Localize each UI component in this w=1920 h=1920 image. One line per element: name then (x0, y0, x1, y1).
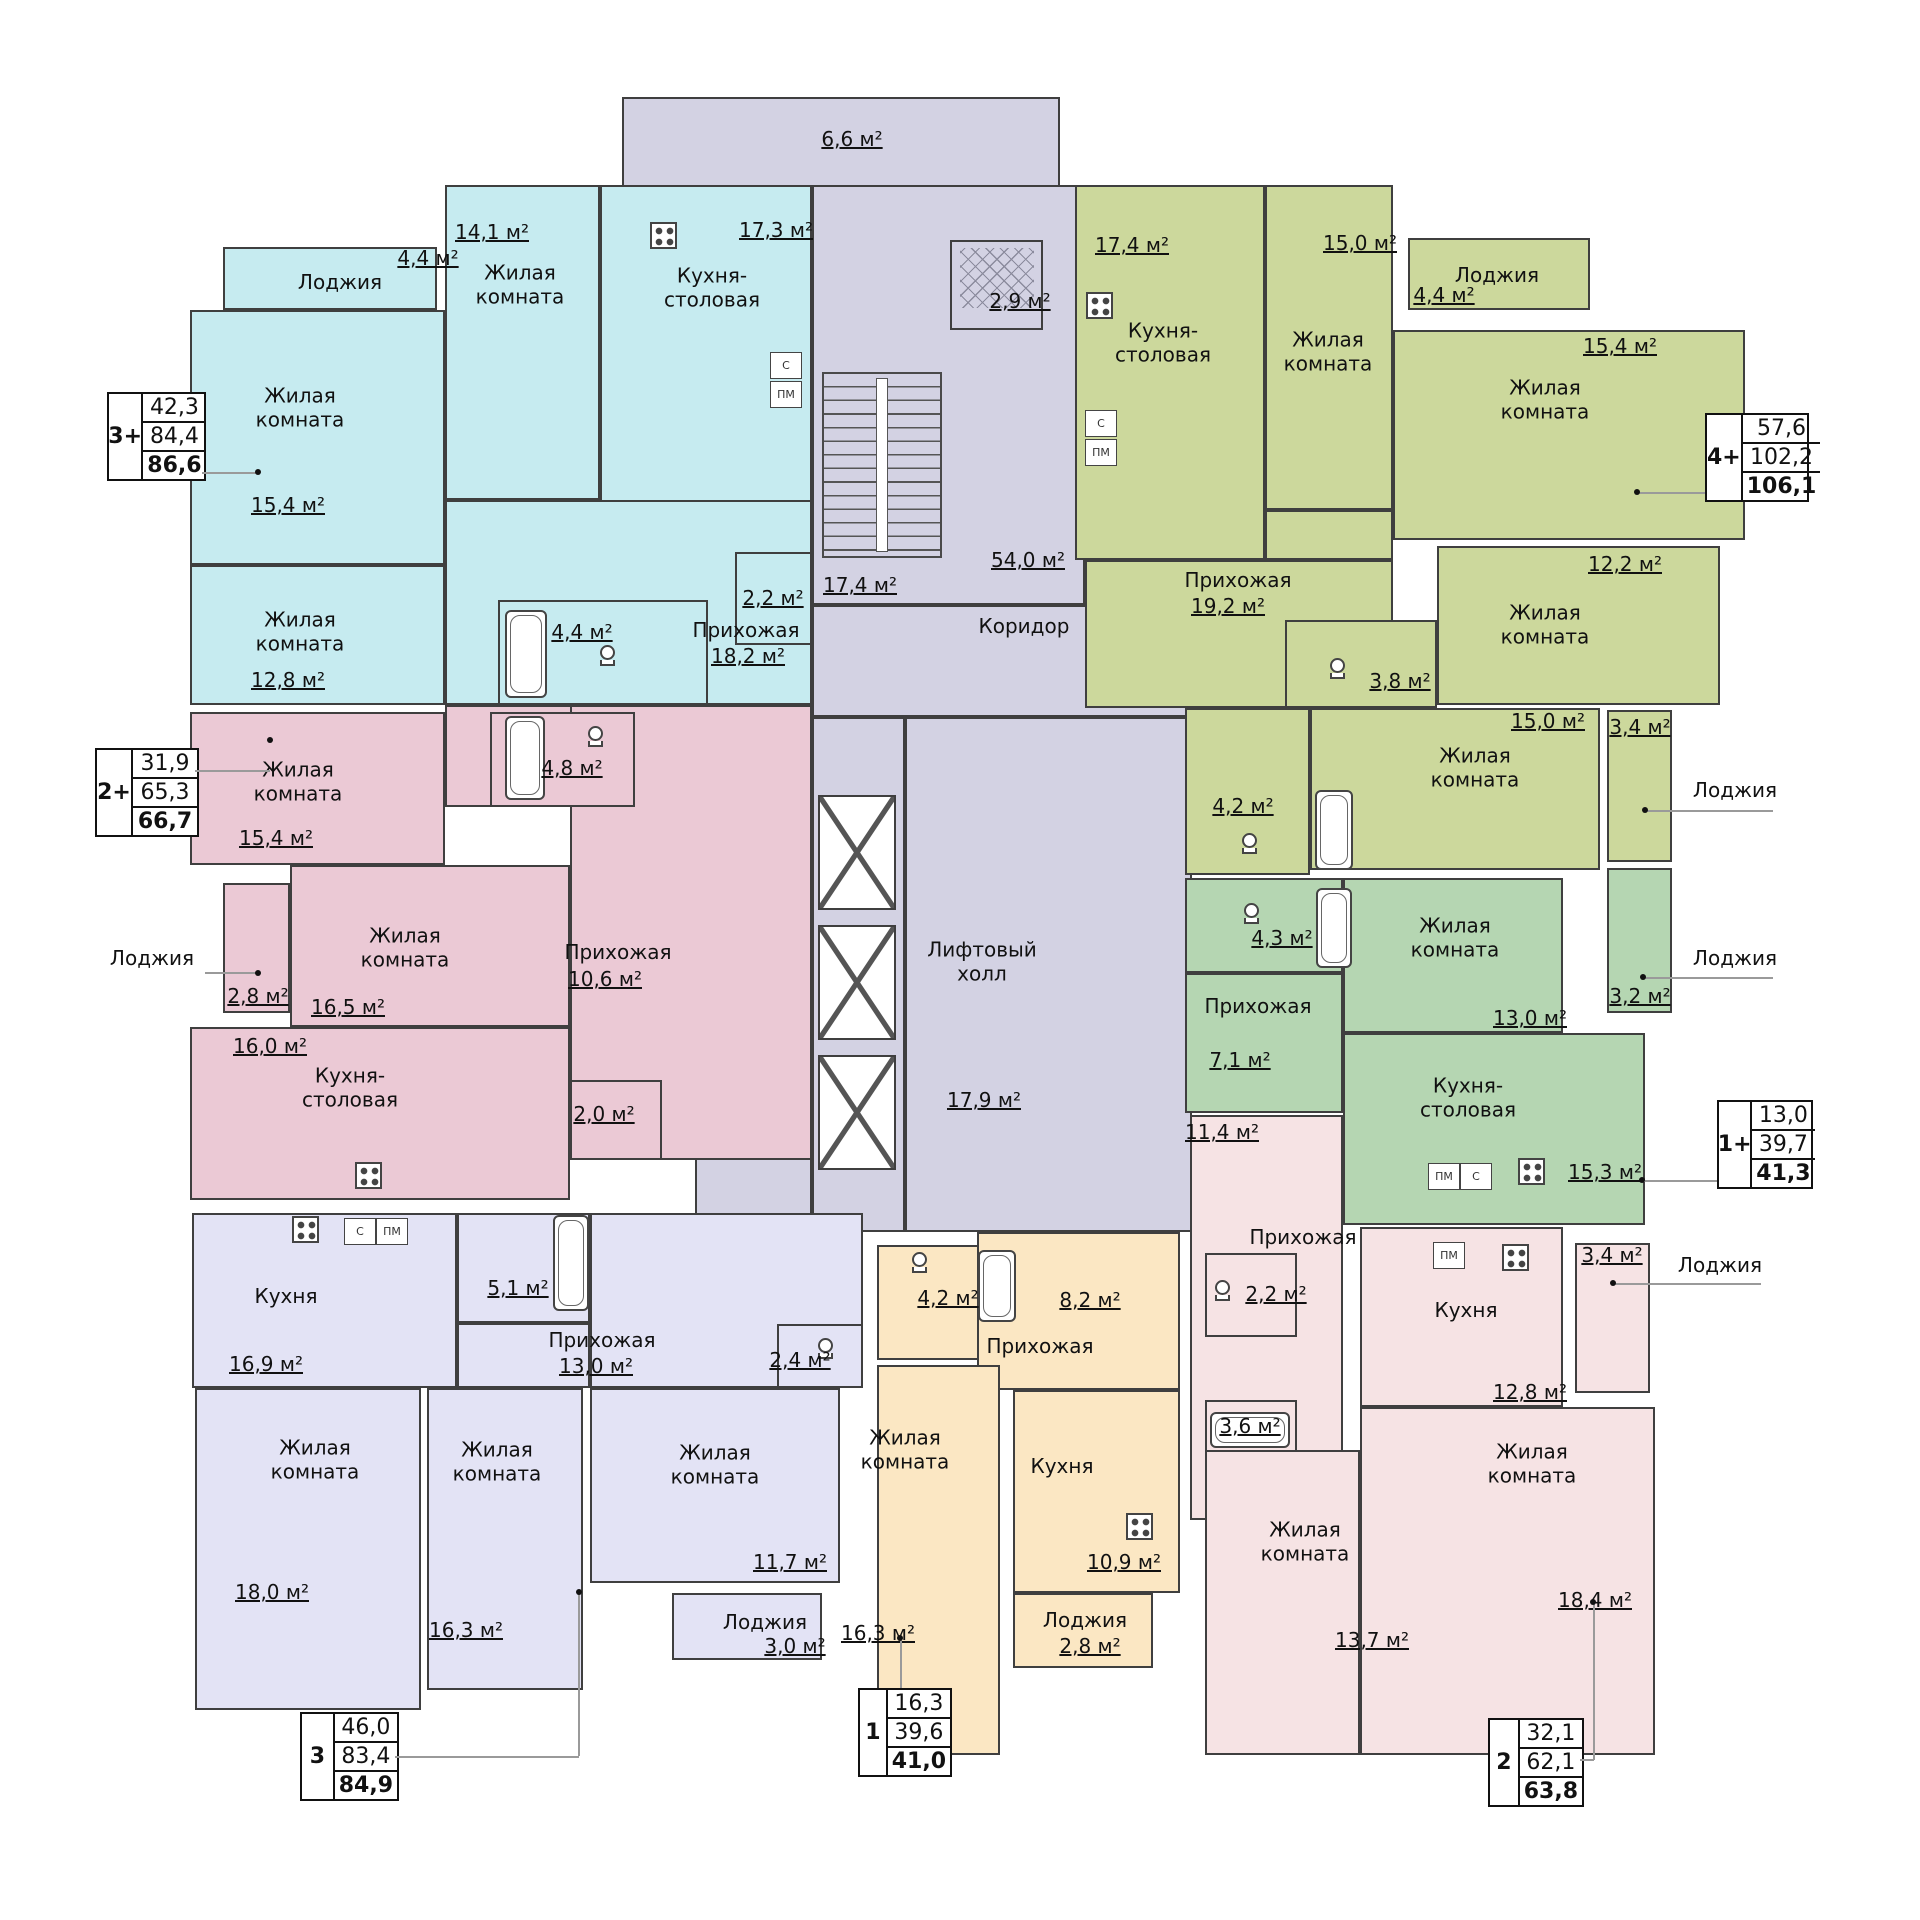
stat-total: 84,9 (335, 1772, 397, 1799)
room-label: Прихожая (692, 618, 799, 642)
room-label: Лоджия (1693, 778, 1777, 802)
toilet-icon (1330, 658, 1347, 682)
bathtub-icon (505, 610, 547, 698)
leader-line (1593, 1602, 1595, 1760)
stat-total: 41,0 (888, 1748, 950, 1775)
stat-living: 16,3 (888, 1690, 950, 1719)
leader-dot (1590, 1599, 1596, 1605)
room-label: Кухня (1031, 1454, 1094, 1478)
area-label: 16,0 м² (233, 1034, 307, 1058)
stat-total: 106,1 (1743, 473, 1821, 500)
room-label: Жилая комната (241, 384, 359, 431)
leader-line (195, 770, 270, 772)
area-label: 2,9 м² (989, 289, 1050, 313)
toilet-icon (1215, 1280, 1232, 1304)
toilet-icon (1242, 833, 1259, 857)
dryer-box: С (770, 352, 802, 379)
room-label: Кухня-столовая (653, 264, 771, 311)
stove-icon (650, 222, 677, 249)
stat-living: 42,3 (143, 394, 205, 423)
leader-line (578, 1592, 580, 1756)
area-label: 4,2 м² (917, 1286, 978, 1310)
area-label: 12,8 м² (251, 668, 325, 692)
area-label: 15,4 м² (1583, 334, 1657, 358)
appliance-label: ПМ (1092, 446, 1110, 459)
area-label: 11,4 м² (1185, 1120, 1259, 1144)
area-label: 2,8 м² (227, 984, 288, 1008)
room-label: Жилая комната (346, 924, 464, 971)
room-label: Жилая комната (846, 1426, 964, 1473)
appliance-label: С (782, 359, 790, 372)
area-label: 4,2 м² (1212, 794, 1273, 818)
stat-box-4plus: 4+ 57,6 102,2 106,1 (1705, 413, 1809, 502)
stove-icon (1502, 1244, 1529, 1271)
stat-total: 63,8 (1520, 1778, 1582, 1805)
area-label: 2,0 м² (573, 1102, 634, 1126)
area-label: 13,7 м² (1335, 1628, 1409, 1652)
stairs-rail-icon (876, 378, 888, 552)
stat-area: 65,3 (133, 779, 197, 808)
area-label: 3,4 м² (1609, 715, 1670, 739)
stove-icon (292, 1216, 319, 1243)
area-label: 54,0 м² (991, 548, 1065, 572)
area-label: 2,2 м² (742, 586, 803, 610)
leader-line (1645, 810, 1773, 812)
leader-dot (267, 737, 273, 743)
stat-living: 32,1 (1520, 1720, 1582, 1749)
leader-line (1642, 1180, 1717, 1182)
area-label: 14,1 м² (455, 220, 529, 244)
stove-icon (1086, 292, 1113, 319)
stat-living: 31,9 (133, 750, 197, 779)
area-label: 17,9 м² (947, 1088, 1021, 1112)
area-label: 11,7 м² (753, 1550, 827, 1574)
area-label: 12,8 м² (1493, 1380, 1567, 1404)
room-label: Жилая комната (241, 608, 359, 655)
area-label: 17,4 м² (823, 573, 897, 597)
area-label: 13,0 м² (1493, 1006, 1567, 1030)
area-label: 3,0 м² (764, 1634, 825, 1658)
leader-line (900, 1638, 902, 1688)
dryer-box: С (344, 1218, 376, 1245)
apartment-type: 3 (302, 1714, 333, 1799)
apartment-type: 2 (1490, 1720, 1518, 1805)
leader-line (1613, 1283, 1761, 1285)
room-label: Прихожая (564, 940, 671, 964)
room-label: Лоджия (1693, 946, 1777, 970)
stat-living: 13,0 (1752, 1102, 1814, 1131)
leader-line (1643, 977, 1773, 979)
area-label: 2,2 м² (1245, 1282, 1306, 1306)
stat-box-2plus: 2+ 31,9 65,3 66,7 (95, 748, 199, 837)
appliance-label: С (1472, 1170, 1480, 1183)
area-label: 4,4 м² (397, 246, 458, 270)
lav-living-2 (427, 1388, 583, 1690)
stairs-icon (822, 372, 942, 558)
leader-line (1580, 1759, 1594, 1761)
room-label: Прихожая (1184, 568, 1291, 592)
room-label: Кухня-столовая (1104, 319, 1222, 366)
room-label: Жилая комната (1473, 1440, 1591, 1487)
washer-box: ПМ (1428, 1163, 1460, 1190)
room-label: Кухня (255, 1284, 318, 1308)
leader-dot (255, 970, 261, 976)
elevator-shaft-icon (818, 795, 896, 910)
stat-box-3plus: 3+ 42,3 84,4 86,6 (107, 392, 206, 481)
area-label: 19,2 м² (1191, 594, 1265, 618)
room-label: Лоджия (298, 270, 382, 294)
area-label: 4,3 м² (1251, 926, 1312, 950)
room-label: Жилая комната (1269, 328, 1387, 375)
green-living-2 (1393, 330, 1745, 540)
washer-box: ПМ (770, 381, 802, 408)
toilet-icon (912, 1252, 929, 1276)
leader-line (1637, 492, 1705, 494)
floor-plan: С ПМ С ПМ С ПМ ПМ С ПМ Лоджия 4,4 м² Жил… (0, 0, 1920, 1920)
room-label: Прихожая (1204, 994, 1311, 1018)
room-label: Лифтовый холл (917, 938, 1047, 985)
stat-living: 46,0 (335, 1714, 397, 1743)
area-label: 3,2 м² (1609, 984, 1670, 1008)
area-label: 15,0 м² (1511, 709, 1585, 733)
room-label: Жилая комната (239, 758, 357, 805)
room-label: Жилая комната (656, 1441, 774, 1488)
appliance-label: ПМ (777, 388, 795, 401)
stat-area: 39,7 (1752, 1131, 1814, 1160)
toilet-icon (588, 726, 605, 750)
leader-dot (576, 1589, 582, 1595)
area-label: 12,2 м² (1588, 552, 1662, 576)
dryer-box: С (1085, 410, 1117, 437)
elevator-shaft-icon (818, 1055, 896, 1170)
toilet-icon (1244, 903, 1261, 927)
leader-dot (1610, 1280, 1616, 1286)
stat-box-2: 2 32,1 62,1 63,8 (1488, 1718, 1584, 1807)
area-label: 4,4 м² (551, 620, 612, 644)
stat-area: 62,1 (1520, 1749, 1582, 1778)
stat-area: 84,4 (143, 423, 205, 452)
teal-kitchen-dining (1343, 1033, 1645, 1225)
stat-total: 66,7 (133, 808, 197, 835)
dryer-box: С (1460, 1163, 1492, 1190)
elevator-shaft-icon (818, 925, 896, 1040)
area-label: 13,0 м² (559, 1354, 633, 1378)
room-label: Жилая комната (1246, 1518, 1364, 1565)
appliance-label: С (1097, 417, 1105, 430)
leader-dot (255, 469, 261, 475)
appliance-label: ПМ (1435, 1170, 1453, 1183)
stat-total: 41,3 (1752, 1160, 1814, 1187)
room-label: Жилая комната (438, 1438, 556, 1485)
bathtub-icon (553, 1215, 589, 1311)
bathtub-icon (1316, 888, 1352, 968)
room-label: Прихожая (548, 1328, 655, 1352)
area-label: 10,6 м² (568, 967, 642, 991)
area-label: 18,0 м² (235, 1580, 309, 1604)
stat-living: 57,6 (1743, 415, 1821, 444)
area-label: 2,8 м² (1059, 1634, 1120, 1658)
area-label: 3,8 м² (1369, 669, 1430, 693)
leader-line (205, 972, 258, 974)
stat-area: 83,4 (335, 1743, 397, 1772)
stat-box-1: 1 16,3 39,6 41,0 (858, 1688, 952, 1777)
toilet-icon (600, 645, 617, 669)
pink-living-2 (1205, 1450, 1360, 1755)
area-label: 7,1 м² (1209, 1048, 1270, 1072)
area-label: 10,9 м² (1087, 1550, 1161, 1574)
leader-dot (1640, 974, 1646, 980)
apartment-type: 1+ (1719, 1102, 1750, 1187)
area-label: 15,3 м² (1568, 1160, 1642, 1184)
room-label: Жилая комната (1396, 914, 1514, 961)
apartment-type: 4+ (1707, 415, 1741, 500)
room-label: Коридор (979, 614, 1070, 638)
apartment-type: 2+ (97, 750, 131, 835)
area-label: 16,9 м² (229, 1352, 303, 1376)
cyan-living-1 (190, 310, 445, 565)
area-label: 15,0 м² (1323, 231, 1397, 255)
room-label: Кухня-столовая (1409, 1074, 1527, 1121)
room-label: Прихожая (986, 1334, 1093, 1358)
area-label: 3,4 м² (1581, 1243, 1642, 1267)
room-label: Кухня-столовая (291, 1064, 409, 1111)
area-label: 17,4 м² (1095, 233, 1169, 257)
room-label: Лоджия (723, 1610, 807, 1634)
stat-area: 102,2 (1743, 444, 1821, 473)
leader-dot (1639, 1177, 1645, 1183)
stove-icon (355, 1162, 382, 1189)
leader-line (202, 472, 258, 474)
area-label: 8,2 м² (1059, 1288, 1120, 1312)
room-label: Лоджия (1043, 1608, 1127, 1632)
area-label: 15,4 м² (239, 826, 313, 850)
stove-icon (1518, 1158, 1545, 1185)
stat-total: 86,6 (143, 452, 205, 479)
stat-box-3: 3 46,0 83,4 84,9 (300, 1712, 399, 1801)
room-label: Жилая комната (461, 261, 579, 308)
room-label: Лоджия (1678, 1253, 1762, 1277)
room-label: Кухня (1435, 1298, 1498, 1322)
area-label: 3,6 м² (1219, 1414, 1280, 1438)
leader-dot (1642, 807, 1648, 813)
area-label: 17,3 м² (739, 218, 813, 242)
bathtub-icon (1315, 790, 1353, 870)
stat-area: 39,6 (888, 1719, 950, 1748)
room-label: Жилая комната (1486, 376, 1604, 423)
appliance-label: ПМ (1440, 1249, 1458, 1262)
room-label: Прихожая (1249, 1225, 1356, 1249)
bathtub-icon (978, 1250, 1016, 1322)
apartment-type: 1 (860, 1690, 886, 1775)
room-label: Жилая комната (256, 1436, 374, 1483)
washer-box: ПМ (376, 1218, 408, 1245)
apartment-type: 3+ (109, 394, 141, 479)
leader-line (395, 1756, 579, 1758)
washer-box: ПМ (1433, 1242, 1465, 1269)
washer-box: ПМ (1085, 439, 1117, 466)
area-label: 2,4 м² (769, 1348, 830, 1372)
appliance-label: ПМ (383, 1225, 401, 1238)
room-label: Жилая комната (1416, 744, 1534, 791)
area-label: 18,2 м² (711, 644, 785, 668)
stat-box-1plus: 1+ 13,0 39,7 41,3 (1717, 1100, 1813, 1189)
stove-icon (1126, 1513, 1153, 1540)
area-label: 16,3 м² (429, 1618, 503, 1642)
area-label: 16,5 м² (311, 995, 385, 1019)
area-label: 16,3 м² (841, 1621, 915, 1645)
area-label: 4,8 м² (541, 756, 602, 780)
leader-dot (1634, 489, 1640, 495)
room-label: Лоджия (110, 946, 194, 970)
green-filler (1265, 510, 1393, 560)
area-label: 6,6 м² (821, 127, 882, 151)
room-label: Жилая комната (1486, 601, 1604, 648)
leader-dot (897, 1635, 903, 1641)
area-label: 5,1 м² (487, 1276, 548, 1300)
appliance-label: С (356, 1225, 364, 1238)
bathtub-icon (505, 716, 545, 800)
green-bathroom (1285, 620, 1437, 708)
area-label: 15,4 м² (251, 493, 325, 517)
area-label: 4,4 м² (1413, 283, 1474, 307)
